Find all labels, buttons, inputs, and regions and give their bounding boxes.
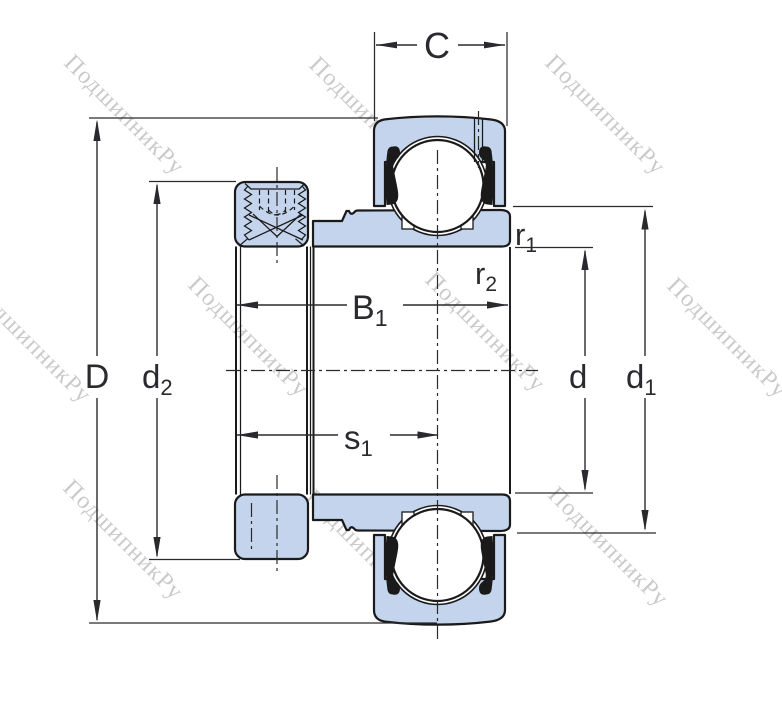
watermark-text: ПодшипникРу <box>540 50 671 181</box>
locking-collar-top <box>235 167 308 263</box>
watermark-text: ПодшипникРу <box>543 482 674 613</box>
dimension-d2: d2 <box>142 182 240 560</box>
watermark-text: ПодшипникРу <box>0 278 96 409</box>
collar-body-bottom <box>235 495 308 560</box>
label-s1: s1 <box>344 419 373 461</box>
dimension-C: C <box>375 25 508 126</box>
label-d: d <box>569 358 587 395</box>
label-r2: r2 <box>475 256 497 296</box>
dimension-s1: s1 <box>237 419 439 461</box>
drawing-canvas: ПодшипникРу ПодшипникРу ПодшипникРу Подш… <box>0 0 782 704</box>
label-r1: r1 <box>515 217 537 257</box>
watermark-text: ПодшипникРу <box>58 475 189 606</box>
label-C: C <box>424 25 450 66</box>
watermark-text: ПодшипникРу <box>183 272 314 403</box>
locking-collar-bottom <box>235 475 308 571</box>
label-D: D <box>85 358 110 396</box>
bearing-upper-section <box>313 116 510 246</box>
label-d1: d1 <box>626 358 657 400</box>
bearing-cross-section-diagram: ПодшипникРу ПодшипникРу ПодшипникРу Подш… <box>0 0 782 704</box>
label-d2: d2 <box>142 358 173 400</box>
watermark-text: ПодшипникРу <box>59 50 190 181</box>
watermark-text: ПодшипникРу <box>662 273 782 404</box>
bearing-lower-section <box>313 495 510 625</box>
label-B1: B1 <box>352 289 387 331</box>
